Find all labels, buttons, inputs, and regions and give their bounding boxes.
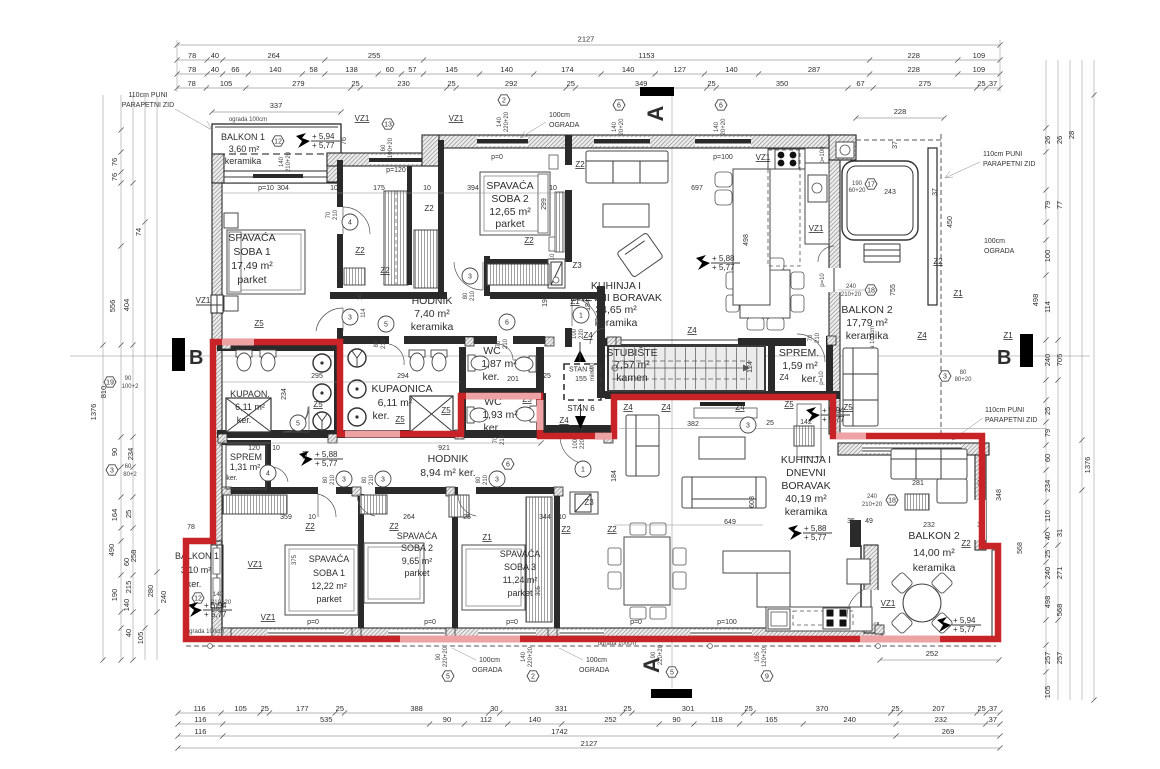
svg-text:ker.: ker. xyxy=(237,415,252,425)
svg-text:Z1: Z1 xyxy=(570,297,580,306)
svg-text:6: 6 xyxy=(506,462,510,469)
svg-text:HODNIK: HODNIK xyxy=(428,453,469,465)
svg-text:127: 127 xyxy=(674,65,687,74)
svg-text:p=0: p=0 xyxy=(506,619,518,626)
svg-text:190: 190 xyxy=(542,295,549,307)
svg-text:+ 5,94: + 5,94 xyxy=(953,616,976,625)
svg-text:VZ1: VZ1 xyxy=(261,613,276,622)
svg-text:60: 60 xyxy=(1043,454,1052,462)
svg-text:2127: 2127 xyxy=(578,35,595,44)
svg-text:76: 76 xyxy=(341,137,348,145)
svg-text:VZ1: VZ1 xyxy=(449,114,464,123)
svg-text:382: 382 xyxy=(687,421,699,428)
svg-text:ker.: ker. xyxy=(226,475,237,482)
svg-text:DNEVNI BORAVAK: DNEVNI BORAVAK xyxy=(570,292,662,304)
svg-text:BALKON 2: BALKON 2 xyxy=(841,304,893,316)
svg-text:VZ1: VZ1 xyxy=(196,296,211,305)
svg-text:SOBA 2: SOBA 2 xyxy=(401,543,433,553)
svg-text:140: 140 xyxy=(497,116,503,127)
svg-text:90: 90 xyxy=(436,653,442,660)
svg-text:10: 10 xyxy=(358,293,364,300)
svg-text:140: 140 xyxy=(612,121,618,132)
svg-text:Z4: Z4 xyxy=(559,416,569,425)
svg-text:80+20: 80+20 xyxy=(955,377,973,383)
svg-text:2: 2 xyxy=(531,674,535,681)
svg-text:10: 10 xyxy=(549,185,557,192)
svg-text:9,65 m²: 9,65 m² xyxy=(402,556,433,566)
svg-text:37: 37 xyxy=(932,188,939,196)
svg-text:BALKON 2: BALKON 2 xyxy=(908,530,960,542)
svg-text:31: 31 xyxy=(1055,529,1064,537)
svg-text:25: 25 xyxy=(623,704,631,713)
svg-text:ker.: ker. xyxy=(802,373,819,385)
svg-text:124: 124 xyxy=(747,361,754,373)
svg-text:1742: 1742 xyxy=(551,727,568,736)
svg-text:120: 120 xyxy=(248,445,260,452)
svg-text:1,59 m²: 1,59 m² xyxy=(782,360,818,372)
svg-text:keramika: keramika xyxy=(785,506,828,518)
svg-text:252: 252 xyxy=(604,715,617,724)
svg-text:230: 230 xyxy=(397,79,410,88)
svg-text:257: 257 xyxy=(1043,652,1052,665)
svg-text:p=100: p=100 xyxy=(717,619,737,626)
svg-text:210+20: 210+20 xyxy=(286,151,292,172)
svg-text:PARAPETNI ZID: PARAPETNI ZID xyxy=(985,417,1037,424)
svg-text:Z5: Z5 xyxy=(784,400,794,409)
svg-text:10: 10 xyxy=(558,514,566,521)
svg-text:234: 234 xyxy=(126,448,135,461)
svg-text:331: 331 xyxy=(555,704,568,713)
svg-text:301: 301 xyxy=(682,704,695,713)
svg-text:25: 25 xyxy=(977,79,985,88)
svg-text:3: 3 xyxy=(495,477,499,484)
svg-text:4: 4 xyxy=(266,471,270,478)
svg-text:210+20: 210+20 xyxy=(841,292,862,298)
svg-text:70: 70 xyxy=(808,334,814,341)
svg-text:25: 25 xyxy=(567,79,575,88)
svg-text:294: 294 xyxy=(397,373,409,380)
svg-text:SPREM: SPREM xyxy=(230,452,262,462)
svg-text:105: 105 xyxy=(234,704,247,713)
svg-text:40: 40 xyxy=(124,629,133,637)
svg-text:5: 5 xyxy=(296,421,300,428)
svg-text:114: 114 xyxy=(1043,301,1052,313)
svg-text:234: 234 xyxy=(1043,480,1052,493)
svg-text:207: 207 xyxy=(932,704,945,713)
svg-text:220+20: 220+20 xyxy=(443,646,449,667)
svg-text:p=0: p=0 xyxy=(424,619,436,626)
svg-text:105: 105 xyxy=(220,79,233,88)
svg-text:6,11 m²: 6,11 m² xyxy=(235,402,265,412)
svg-text:49: 49 xyxy=(865,518,873,525)
svg-text:SPAVAĆA: SPAVAĆA xyxy=(486,179,533,192)
svg-text:3,60 m²: 3,60 m² xyxy=(229,144,260,154)
svg-text:80+2: 80+2 xyxy=(123,472,137,478)
svg-text:58: 58 xyxy=(309,65,317,74)
svg-text:264: 264 xyxy=(267,51,280,60)
svg-text:37: 37 xyxy=(989,715,997,724)
svg-text:17,49 m²: 17,49 m² xyxy=(231,260,273,272)
svg-text:1,31 m²: 1,31 m² xyxy=(230,462,261,472)
svg-text:1: 1 xyxy=(581,467,585,474)
svg-text:Z3: Z3 xyxy=(584,498,594,507)
svg-text:SPAVAĆA: SPAVAĆA xyxy=(500,549,541,559)
svg-text:p=10: p=10 xyxy=(258,185,274,192)
svg-text:37: 37 xyxy=(989,704,997,713)
svg-text:KUHINJA I: KUHINJA I xyxy=(781,454,831,466)
svg-text:Z2: Z2 xyxy=(305,522,315,531)
svg-text:118: 118 xyxy=(711,715,723,724)
svg-text:234: 234 xyxy=(281,388,288,400)
svg-text:Z5: Z5 xyxy=(441,406,451,415)
svg-text:155: 155 xyxy=(575,376,587,383)
svg-text:78: 78 xyxy=(187,524,195,531)
svg-text:568: 568 xyxy=(1017,542,1024,554)
svg-text:105: 105 xyxy=(1043,686,1052,699)
svg-text:60+20: 60+20 xyxy=(849,188,867,194)
svg-text:109: 109 xyxy=(973,51,986,60)
svg-text:Z2: Z2 xyxy=(961,539,971,548)
svg-text:275: 275 xyxy=(919,79,932,88)
svg-text:BALKON 1: BALKON 1 xyxy=(221,132,265,142)
svg-text:SOBA 2: SOBA 2 xyxy=(491,193,529,205)
svg-text:165: 165 xyxy=(765,715,778,724)
svg-text:B: B xyxy=(997,347,1011,369)
svg-text:11,24 m²: 11,24 m² xyxy=(503,575,538,585)
svg-text:ograda 100cm: ograda 100cm xyxy=(229,117,267,123)
svg-text:KUHINJA I: KUHINJA I xyxy=(591,280,641,292)
svg-text:220+20: 220+20 xyxy=(504,111,510,132)
svg-text:295: 295 xyxy=(311,373,323,380)
svg-text:498: 498 xyxy=(743,234,750,246)
svg-text:p=0: p=0 xyxy=(491,154,503,161)
svg-text:Z5: Z5 xyxy=(395,415,405,424)
svg-text:Z4: Z4 xyxy=(623,403,633,412)
svg-text:30: 30 xyxy=(490,704,498,713)
svg-text:292: 292 xyxy=(505,79,518,88)
svg-text:p=0: p=0 xyxy=(307,619,319,626)
svg-text:210: 210 xyxy=(483,474,489,485)
svg-text:299: 299 xyxy=(541,198,548,210)
svg-text:parket: parket xyxy=(495,218,524,230)
svg-text:3: 3 xyxy=(342,477,346,484)
svg-text:138: 138 xyxy=(345,65,358,74)
svg-text:25: 25 xyxy=(463,514,471,521)
svg-text:BALKON 1: BALKON 1 xyxy=(175,551,219,561)
svg-text:349: 349 xyxy=(635,79,648,88)
svg-text:264: 264 xyxy=(403,514,415,521)
svg-text:10: 10 xyxy=(423,185,431,192)
svg-text:243: 243 xyxy=(884,189,896,196)
svg-text:Z3: Z3 xyxy=(572,261,582,270)
svg-text:B: B xyxy=(189,347,203,369)
svg-text:210: 210 xyxy=(815,332,821,343)
svg-text:19: 19 xyxy=(106,380,114,387)
svg-text:SOBA 3: SOBA 3 xyxy=(504,562,536,572)
svg-text:3: 3 xyxy=(110,468,114,475)
svg-text:10: 10 xyxy=(330,185,338,192)
svg-text:140: 140 xyxy=(279,156,285,167)
svg-text:parket: parket xyxy=(507,588,533,598)
svg-text:370: 370 xyxy=(816,704,829,713)
svg-text:177: 177 xyxy=(296,704,309,713)
svg-text:keramika: keramika xyxy=(913,562,956,574)
svg-text:OGRADA: OGRADA xyxy=(472,667,503,674)
svg-text:140: 140 xyxy=(528,715,541,724)
svg-text:28: 28 xyxy=(1067,131,1076,139)
svg-text:Z4: Z4 xyxy=(917,331,927,340)
svg-text:80: 80 xyxy=(323,476,329,483)
svg-text:705: 705 xyxy=(1055,354,1064,367)
svg-text:184: 184 xyxy=(611,470,618,482)
svg-text:25: 25 xyxy=(1043,407,1052,415)
svg-text:12,65 m²: 12,65 m² xyxy=(489,206,531,218)
svg-text:76: 76 xyxy=(110,173,119,181)
svg-text:210: 210 xyxy=(333,209,339,220)
svg-text:60: 60 xyxy=(386,65,394,74)
svg-text:568: 568 xyxy=(1055,604,1064,617)
svg-text:2: 2 xyxy=(502,98,506,105)
svg-text:100: 100 xyxy=(572,328,578,339)
svg-text:175: 175 xyxy=(373,185,385,192)
svg-text:201: 201 xyxy=(507,376,519,383)
svg-text:25: 25 xyxy=(707,79,715,88)
svg-text:100+20: 100+20 xyxy=(388,137,394,158)
svg-text:110cm PUNI: 110cm PUNI xyxy=(128,92,167,99)
svg-text:keramika: keramika xyxy=(411,321,454,333)
svg-text:116: 116 xyxy=(194,715,206,724)
svg-text:4: 4 xyxy=(348,220,352,227)
svg-text:810: 810 xyxy=(99,386,108,399)
svg-text:490: 490 xyxy=(107,544,116,557)
svg-text:240: 240 xyxy=(159,591,168,604)
svg-text:40,19 m²: 40,19 m² xyxy=(785,493,827,505)
svg-text:26: 26 xyxy=(1043,136,1052,144)
svg-text:145: 145 xyxy=(445,65,458,74)
svg-text:90: 90 xyxy=(110,448,119,456)
svg-text:100cm: 100cm xyxy=(586,657,607,664)
svg-text:17: 17 xyxy=(867,182,875,189)
svg-text:min.90: min.90 xyxy=(590,362,596,381)
svg-text:280: 280 xyxy=(146,585,155,598)
svg-text:+ 5,77: + 5,77 xyxy=(712,263,735,272)
svg-text:210: 210 xyxy=(470,290,476,301)
svg-text:12: 12 xyxy=(194,596,202,603)
svg-text:116: 116 xyxy=(194,727,206,736)
svg-text:140: 140 xyxy=(500,65,513,74)
svg-text:110cm PUNI: 110cm PUNI xyxy=(985,407,1024,414)
svg-text:80: 80 xyxy=(463,292,469,299)
svg-text:25: 25 xyxy=(124,510,133,518)
svg-text:100: 100 xyxy=(573,438,579,449)
svg-text:337: 337 xyxy=(270,101,283,110)
svg-text:1376: 1376 xyxy=(1083,457,1092,474)
svg-text:SOBA 1: SOBA 1 xyxy=(233,246,271,258)
svg-text:164: 164 xyxy=(110,509,119,522)
svg-text:78: 78 xyxy=(188,65,196,74)
svg-text:257: 257 xyxy=(1055,652,1064,665)
svg-text:37: 37 xyxy=(989,79,997,88)
svg-text:100cm: 100cm xyxy=(984,238,1005,245)
svg-text:90: 90 xyxy=(651,651,657,658)
svg-text:6: 6 xyxy=(719,103,723,110)
svg-text:240: 240 xyxy=(1043,567,1052,580)
svg-text:190: 190 xyxy=(110,589,119,602)
svg-text:90: 90 xyxy=(443,715,451,724)
svg-text:+ 5,94: + 5,94 xyxy=(312,132,335,141)
svg-text:+ 5,88: + 5,88 xyxy=(804,524,827,533)
svg-text:210: 210 xyxy=(381,338,387,349)
svg-text:80: 80 xyxy=(374,340,380,347)
svg-text:SPAVAĆA: SPAVAĆA xyxy=(228,231,275,244)
svg-text:HODNIK: HODNIK xyxy=(412,295,453,307)
svg-text:3: 3 xyxy=(746,423,750,430)
svg-text:25: 25 xyxy=(336,704,344,713)
svg-text:13: 13 xyxy=(384,122,392,129)
svg-text:keramika: keramika xyxy=(225,156,262,166)
svg-text:OGRADA: OGRADA xyxy=(984,248,1015,255)
svg-text:77: 77 xyxy=(1055,201,1064,209)
svg-text:1,87 m²: 1,87 m² xyxy=(481,358,517,370)
svg-text:7,40 m²: 7,40 m² xyxy=(414,308,450,320)
svg-text:498: 498 xyxy=(1043,596,1052,609)
svg-text:100+2: 100+2 xyxy=(122,384,140,390)
svg-text:350: 350 xyxy=(776,79,789,88)
svg-text:+ 5,77: + 5,77 xyxy=(804,533,827,542)
svg-text:ker.: ker. xyxy=(484,422,501,434)
svg-text:105: 105 xyxy=(755,651,761,662)
svg-text:67: 67 xyxy=(856,79,864,88)
svg-text:697: 697 xyxy=(691,185,703,192)
svg-text:25: 25 xyxy=(1043,550,1052,558)
svg-text:78: 78 xyxy=(188,79,196,88)
svg-text:359: 359 xyxy=(280,514,292,521)
svg-text:215: 215 xyxy=(124,581,133,594)
svg-text:A: A xyxy=(643,105,668,121)
svg-text:269: 269 xyxy=(942,727,955,736)
svg-text:3: 3 xyxy=(943,374,947,381)
svg-text:OGRADA: OGRADA xyxy=(549,122,580,129)
svg-text:281: 281 xyxy=(912,480,924,487)
svg-text:556: 556 xyxy=(108,300,117,313)
svg-text:VZ1: VZ1 xyxy=(881,599,896,608)
svg-text:450: 450 xyxy=(947,216,954,228)
svg-text:80: 80 xyxy=(362,476,368,483)
svg-text:Z2: Z2 xyxy=(355,246,365,255)
svg-text:252: 252 xyxy=(926,649,939,658)
svg-text:Z4: Z4 xyxy=(661,403,671,412)
svg-text:70: 70 xyxy=(326,211,332,218)
svg-text:140: 140 xyxy=(725,65,738,74)
svg-text:388: 388 xyxy=(410,704,423,713)
svg-text:SPAVAĆA: SPAVAĆA xyxy=(309,554,350,564)
svg-text:210: 210 xyxy=(330,474,336,485)
svg-text:60: 60 xyxy=(125,464,132,470)
svg-text:17,79 m²: 17,79 m² xyxy=(846,317,888,329)
svg-text:255: 255 xyxy=(368,51,381,60)
svg-text:+ 5,77: + 5,77 xyxy=(953,625,976,634)
svg-text:76: 76 xyxy=(110,158,119,166)
svg-text:271: 271 xyxy=(1055,567,1064,580)
svg-text:20+20: 20+20 xyxy=(721,118,727,136)
svg-text:STAN 6: STAN 6 xyxy=(567,404,595,413)
svg-text:25: 25 xyxy=(351,79,359,88)
svg-text:Z2: Z2 xyxy=(575,160,585,169)
svg-text:8,94 m² ker.: 8,94 m² ker. xyxy=(420,467,475,479)
svg-text:Z2: Z2 xyxy=(933,257,943,266)
svg-text:80: 80 xyxy=(960,370,967,376)
svg-text:90: 90 xyxy=(125,376,132,382)
svg-text:498: 498 xyxy=(1031,294,1040,307)
svg-text:79: 79 xyxy=(1043,201,1052,209)
svg-text:232: 232 xyxy=(935,715,948,724)
svg-text:+ 5,77: + 5,77 xyxy=(204,610,227,619)
svg-text:KUPAONICA: KUPAONICA xyxy=(371,383,432,395)
svg-text:VZ1: VZ1 xyxy=(248,560,263,569)
svg-text:+ 5,88: + 5,88 xyxy=(315,450,338,459)
svg-text:Z2: Z2 xyxy=(524,236,534,245)
svg-text:kamen: kamen xyxy=(616,372,648,384)
svg-text:7,57 m²: 7,57 m² xyxy=(614,359,650,371)
svg-text:190: 190 xyxy=(852,181,863,187)
svg-text:116: 116 xyxy=(194,704,206,713)
svg-text:34,65 m²: 34,65 m² xyxy=(595,304,637,316)
svg-text:109: 109 xyxy=(973,65,986,74)
svg-text:755: 755 xyxy=(890,284,897,296)
svg-text:STUBIŠTE: STUBIŠTE xyxy=(606,346,657,359)
svg-text:114: 114 xyxy=(361,308,367,318)
svg-text:228: 228 xyxy=(894,107,907,116)
svg-text:Z2: Z2 xyxy=(380,266,390,275)
svg-text:p=0: p=0 xyxy=(630,619,642,626)
svg-text:70: 70 xyxy=(496,340,502,347)
svg-text:25: 25 xyxy=(891,704,899,713)
svg-text:78: 78 xyxy=(188,51,196,60)
svg-text:287: 287 xyxy=(808,65,821,74)
svg-text:344: 344 xyxy=(539,514,551,521)
svg-text:PARAPETNI ZID: PARAPETNI ZID xyxy=(983,161,1035,168)
svg-text:Z4: Z4 xyxy=(735,403,745,412)
svg-text:25: 25 xyxy=(543,373,551,380)
svg-text:100: 100 xyxy=(1043,250,1052,263)
svg-text:parket: parket xyxy=(237,274,266,286)
svg-text:228: 228 xyxy=(907,65,920,74)
svg-text:12: 12 xyxy=(274,139,282,146)
svg-text:1376: 1376 xyxy=(89,404,98,421)
svg-text:140: 140 xyxy=(521,651,527,662)
svg-text:305: 305 xyxy=(536,585,542,596)
svg-text:+ 5,94: + 5,94 xyxy=(204,601,227,610)
svg-text:40: 40 xyxy=(211,65,219,74)
svg-text:3: 3 xyxy=(381,477,385,484)
svg-text:DNEVNI: DNEVNI xyxy=(786,467,826,479)
svg-text:375: 375 xyxy=(292,554,298,565)
svg-text:74: 74 xyxy=(134,228,143,236)
svg-text:240: 240 xyxy=(867,494,878,500)
svg-text:60: 60 xyxy=(381,144,387,151)
svg-text:20+20: 20+20 xyxy=(619,118,625,136)
svg-text:18: 18 xyxy=(888,498,896,505)
svg-text:9: 9 xyxy=(765,674,769,681)
svg-text:25: 25 xyxy=(744,704,752,713)
svg-text:10: 10 xyxy=(550,253,556,260)
svg-text:+ 5,88: + 5,88 xyxy=(712,254,735,263)
svg-text:Z5: Z5 xyxy=(254,319,264,328)
svg-text:535: 535 xyxy=(320,715,333,724)
svg-text:112: 112 xyxy=(480,715,492,724)
svg-text:Z4: Z4 xyxy=(583,331,593,340)
svg-text:5: 5 xyxy=(670,670,674,677)
